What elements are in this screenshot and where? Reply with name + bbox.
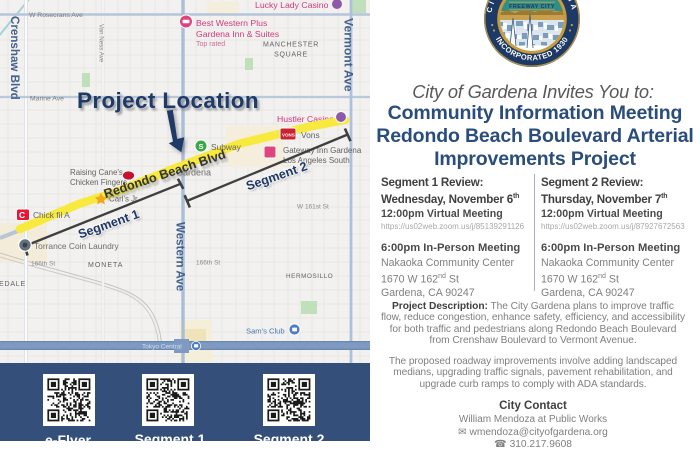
svg-text:SQUARE: SQUARE — [274, 52, 308, 59]
svg-text:Torrance Coin Laundry: Torrance Coin Laundry — [34, 241, 120, 251]
svg-text:HERMOSILLO: HERMOSILLO — [286, 273, 333, 280]
svg-text:Van Ness Ave: Van Ness Ave — [98, 24, 105, 63]
svg-text:Top rated: Top rated — [196, 41, 225, 48]
svg-text:Vermont Ave: Vermont Ave — [342, 18, 356, 92]
svg-text:S: S — [199, 142, 204, 151]
svg-text:Tokyo Central: Tokyo Central — [142, 344, 182, 351]
svg-text:Marine Ave: Marine Ave — [30, 96, 64, 103]
svg-text:MANCHESTER: MANCHESTER — [263, 42, 319, 49]
svg-text:Crenshaw Blvd: Crenshaw Blvd — [8, 16, 21, 100]
svg-text:Western Ave: Western Ave — [174, 222, 187, 292]
svg-text:EDALE: EDALE — [0, 281, 26, 288]
svg-text:166th St: 166th St — [31, 261, 55, 268]
svg-text:Gardena Inn & Suites: Gardena Inn & Suites — [196, 29, 280, 39]
svg-text:166th St: 166th St — [196, 260, 220, 267]
svg-text:Gateway Inn Gardena: Gateway Inn Gardena — [283, 146, 362, 155]
svg-text:Lucky Lady Casino: Lucky Lady Casino — [255, 0, 329, 10]
svg-text:VONS: VONS — [282, 133, 295, 138]
svg-text:W 161st St: W 161st St — [297, 204, 329, 211]
svg-text:Project Location: Project Location — [77, 88, 259, 113]
svg-text:C: C — [19, 210, 25, 220]
svg-text:MONETA: MONETA — [88, 262, 123, 269]
svg-text:FREEWAY CITY: FREEWAY CITY — [509, 4, 555, 10]
svg-text:Best Western Plus: Best Western Plus — [196, 18, 268, 28]
svg-text:Raising Cane's: Raising Cane's — [70, 168, 123, 177]
svg-text:Vons: Vons — [301, 130, 320, 140]
svg-text:Sam's Club: Sam's Club — [246, 327, 285, 336]
svg-text:Chick fil A: Chick fil A — [33, 210, 70, 220]
svg-text:W Rosecrans Ave: W Rosecrans Ave — [29, 12, 83, 19]
